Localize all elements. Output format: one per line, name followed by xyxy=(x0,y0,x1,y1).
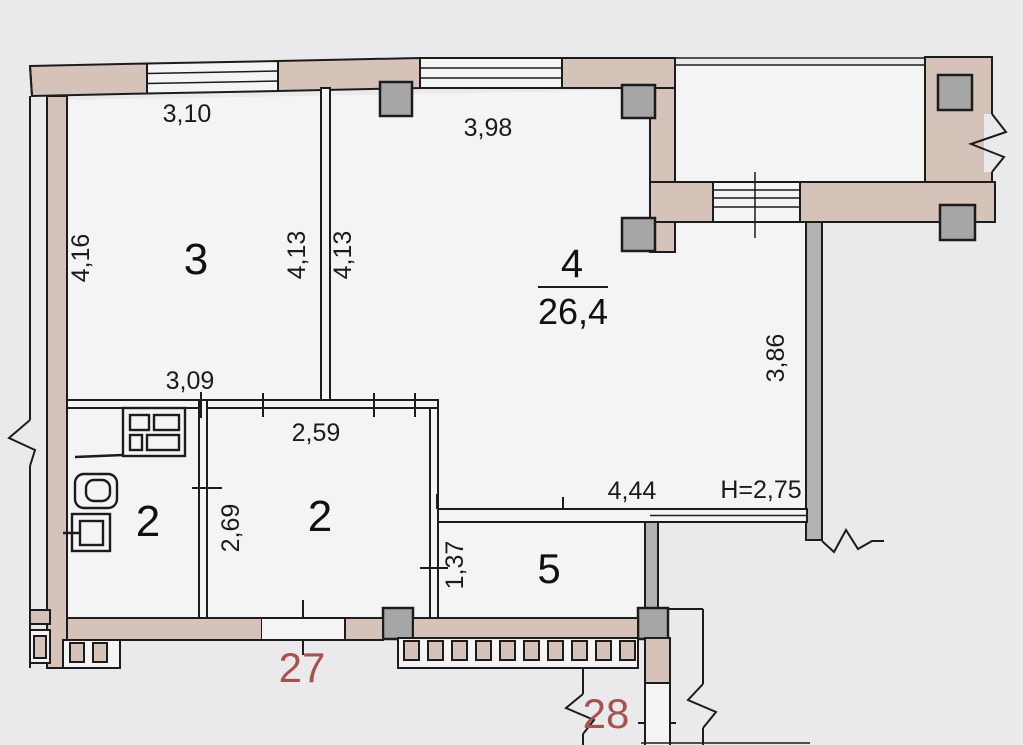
baluster xyxy=(93,643,107,662)
dim-hall-width: 2,59 xyxy=(292,419,341,447)
wall-stub xyxy=(30,610,50,624)
column xyxy=(938,75,972,110)
window xyxy=(420,58,562,88)
ceiling-height-label: H=2,75 xyxy=(720,476,801,504)
gray-wall xyxy=(806,222,822,540)
column xyxy=(940,205,975,240)
bathroom-right-wall xyxy=(199,400,207,620)
baluster xyxy=(620,641,635,660)
stairs xyxy=(713,182,800,222)
dim-room3-height: 4,16 xyxy=(67,234,95,283)
column xyxy=(622,218,655,251)
window xyxy=(147,61,278,94)
unit-28-label: 28 xyxy=(583,690,630,737)
baluster xyxy=(404,641,419,660)
dim-room4-width: 3,98 xyxy=(464,114,513,142)
dim-bathroom-width: 3,09 xyxy=(166,367,215,395)
baluster xyxy=(34,636,46,658)
wall-segment xyxy=(30,64,147,97)
balcony-door-opening xyxy=(262,617,345,641)
baluster xyxy=(524,641,539,660)
room5-number: 5 xyxy=(537,545,560,592)
wall-segment xyxy=(67,618,262,640)
column xyxy=(380,82,412,116)
hall-top-wall xyxy=(207,400,438,408)
dim-right-wall: 3,86 xyxy=(762,334,790,383)
room4-number: 4 xyxy=(561,242,583,286)
baluster xyxy=(70,643,84,662)
baluster xyxy=(476,641,491,660)
bathroom-number: 2 xyxy=(136,497,160,546)
room5-right-gray-wall xyxy=(645,522,658,608)
column xyxy=(383,608,413,639)
baluster xyxy=(428,641,443,660)
column xyxy=(638,608,668,639)
party-wall xyxy=(645,638,670,683)
floor-plan-page: 3,10 3,98 4,16 4,13 4,13 3,09 2,59 2,69 … xyxy=(0,0,1023,745)
baluster xyxy=(500,641,515,660)
party-wall-lower xyxy=(645,683,670,745)
dim-room4-wall: 4,13 xyxy=(329,231,357,280)
unit-27-label: 27 xyxy=(279,644,326,691)
room4-area: 26,4 xyxy=(538,291,608,332)
wall-strip xyxy=(47,96,67,668)
wall-segment xyxy=(345,618,383,640)
floor-plan-drawing: 3,10 3,98 4,16 4,13 4,13 3,09 2,59 2,69 … xyxy=(0,0,1023,745)
landing-bottom-left-wall xyxy=(650,182,713,222)
dim-corridor-width: 4,44 xyxy=(608,477,657,505)
bathroom-top-wall xyxy=(67,400,207,408)
column xyxy=(622,85,655,118)
baluster xyxy=(452,641,467,660)
baluster xyxy=(572,641,587,660)
dim-hall-height: 2,69 xyxy=(217,504,245,553)
room3-number: 3 xyxy=(184,235,208,284)
balcony-27-railing xyxy=(398,638,638,668)
wall-segment xyxy=(413,618,638,638)
hall-number: 2 xyxy=(308,492,332,541)
dim-room5-height: 1,37 xyxy=(441,541,469,590)
baluster xyxy=(596,641,611,660)
center-wall xyxy=(430,408,438,620)
stair-landing-floor xyxy=(675,65,925,182)
dim-room3-wall: 4,13 xyxy=(283,231,311,280)
wall-segment xyxy=(562,58,675,88)
dim-room3-width: 3,10 xyxy=(163,100,212,128)
baluster xyxy=(548,641,563,660)
